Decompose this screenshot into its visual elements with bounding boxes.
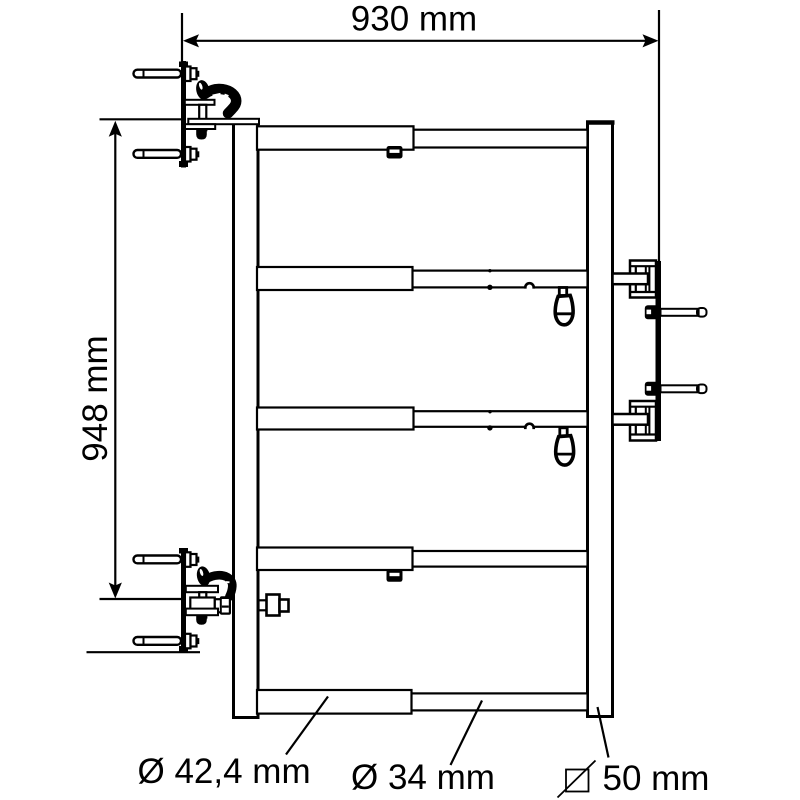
- svg-text:930 mm: 930 mm: [351, 0, 477, 39]
- svg-text:948 mm: 948 mm: [76, 335, 115, 461]
- svg-text:50 mm: 50 mm: [603, 759, 710, 798]
- svg-text:Ø 34 mm: Ø 34 mm: [351, 758, 495, 797]
- svg-text:Ø 42,4 mm: Ø 42,4 mm: [138, 752, 311, 791]
